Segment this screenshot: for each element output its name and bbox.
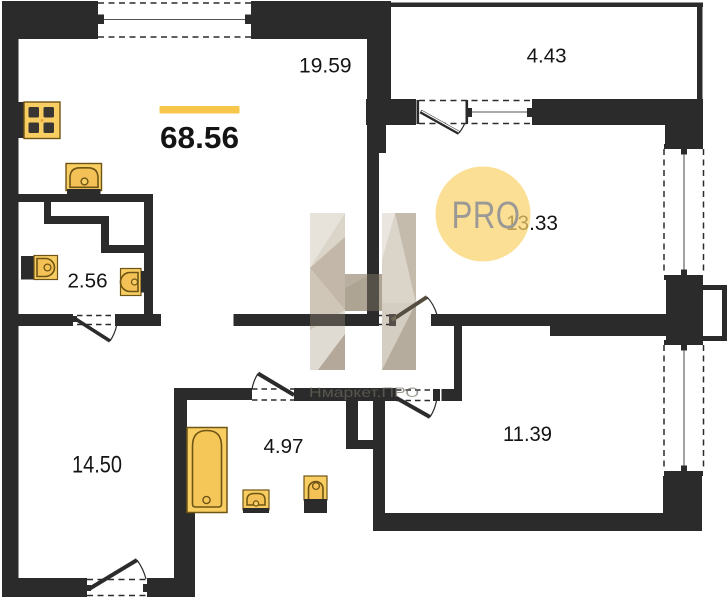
svg-text:4.43: 4.43 [527, 45, 567, 68]
svg-text:11.39: 11.39 [503, 422, 552, 446]
svg-text:Нмаркет.ПРО: Нмаркет.ПРО [309, 384, 419, 400]
svg-text:14.50: 14.50 [72, 452, 122, 479]
svg-text:68.56: 68.56 [160, 120, 239, 155]
svg-text:4.97: 4.97 [264, 436, 304, 458]
svg-text:19.59: 19.59 [299, 54, 352, 78]
svg-text:PRO: PRO [452, 195, 521, 237]
svg-text:2.56: 2.56 [68, 270, 108, 293]
